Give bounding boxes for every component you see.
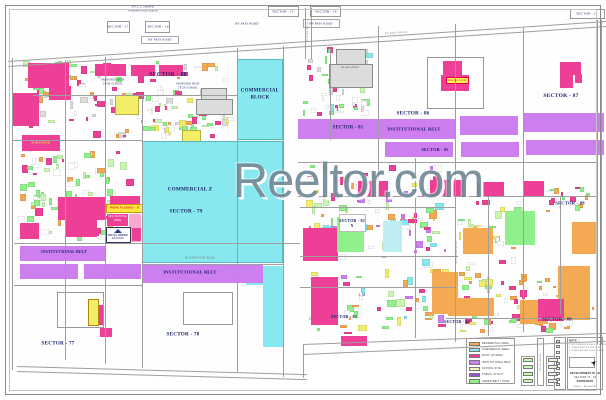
watermark: Reeltor.com (200, 153, 516, 209)
road-line (601, 20, 602, 344)
master-plan-map: SECTOR - 17SECTOR - 16SECTOR - 15SECTOR … (0, 0, 606, 400)
ad-logo-triangle-icon (114, 229, 122, 233)
